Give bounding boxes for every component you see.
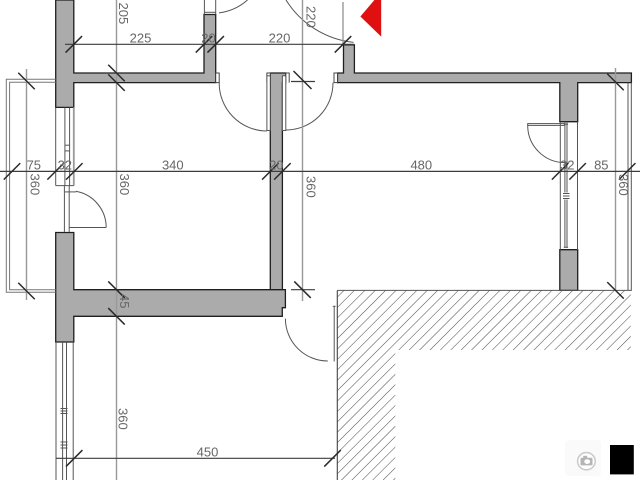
svg-text:20: 20	[201, 31, 215, 46]
svg-text:340: 340	[162, 158, 184, 173]
svg-text:85: 85	[594, 158, 608, 173]
svg-text:360: 360	[116, 408, 131, 430]
svg-text:360: 360	[616, 174, 631, 196]
svg-text:45: 45	[117, 294, 132, 308]
svg-text:225: 225	[130, 31, 152, 46]
svg-text:360: 360	[304, 176, 319, 198]
svg-text:360: 360	[28, 174, 43, 196]
svg-text:480: 480	[410, 158, 432, 173]
svg-text:450: 450	[197, 444, 219, 459]
svg-text:205: 205	[116, 3, 131, 25]
svg-text:32: 32	[58, 158, 72, 173]
svg-text:220: 220	[269, 31, 291, 46]
svg-text:75: 75	[27, 158, 41, 173]
svg-text:220: 220	[304, 6, 319, 28]
svg-text:20: 20	[269, 158, 283, 173]
svg-text:32: 32	[560, 158, 574, 173]
svg-text:360: 360	[117, 174, 132, 196]
